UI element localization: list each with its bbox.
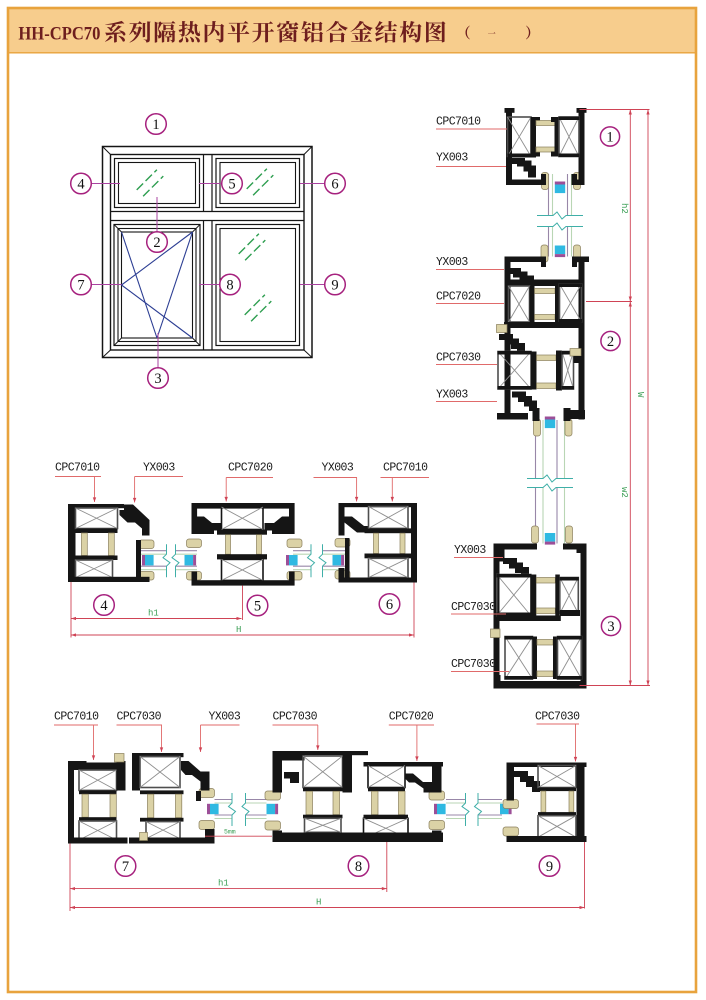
svg-text:h2: h2 [619,203,629,214]
svg-text:HH-CPC70: HH-CPC70 [18,24,100,45]
svg-text:1: 1 [152,117,159,133]
svg-text:4: 4 [100,598,108,614]
svg-text:5: 5 [228,176,235,192]
svg-text:CPC7030: CPC7030 [451,601,496,614]
svg-text:YX003: YX003 [322,462,354,475]
svg-text:YX003: YX003 [454,544,486,557]
svg-text:CPC7030: CPC7030 [535,711,580,724]
svg-text:YX003: YX003 [436,256,468,269]
svg-text:CPC7010: CPC7010 [436,116,481,129]
svg-text:7: 7 [122,859,129,875]
svg-text:CPC7020: CPC7020 [389,711,434,724]
svg-text:5mm: 5mm [224,829,236,836]
svg-text:3: 3 [154,371,161,387]
svg-text:CPC7030: CPC7030 [436,352,481,365]
svg-text:CPC7030: CPC7030 [117,711,162,724]
svg-text:5: 5 [254,598,261,614]
svg-text:9: 9 [331,277,338,293]
svg-text:8: 8 [226,277,233,293]
svg-text:CPC7020: CPC7020 [436,291,481,304]
svg-text:CPC7010: CPC7010 [54,711,99,724]
svg-text:4: 4 [77,176,85,192]
svg-text:8: 8 [355,859,362,875]
svg-text:h1: h1 [148,609,159,619]
svg-text:6: 6 [386,597,393,613]
svg-text:CPC7010: CPC7010 [383,462,428,475]
svg-text:CPC7030: CPC7030 [451,658,496,671]
svg-text:CPC7030: CPC7030 [273,711,318,724]
svg-text:H: H [236,625,241,635]
svg-text:2: 2 [153,235,160,251]
svg-text:w2: w2 [619,487,629,498]
svg-text:7: 7 [77,277,84,293]
svg-text:CPC7020: CPC7020 [228,462,273,475]
svg-text:6: 6 [331,176,338,192]
svg-text:1: 1 [606,129,613,145]
svg-text:YX003: YX003 [436,152,468,165]
svg-text:YX003: YX003 [209,711,241,724]
svg-text:W: W [635,392,645,398]
svg-text:h1: h1 [218,879,229,889]
svg-text:YX003: YX003 [436,389,468,402]
svg-text:2: 2 [607,334,614,350]
svg-text:CPC7010: CPC7010 [55,462,100,475]
svg-text:H: H [316,898,321,908]
svg-text:YX003: YX003 [143,462,175,475]
svg-text:9: 9 [546,859,553,875]
svg-text:3: 3 [607,619,614,635]
